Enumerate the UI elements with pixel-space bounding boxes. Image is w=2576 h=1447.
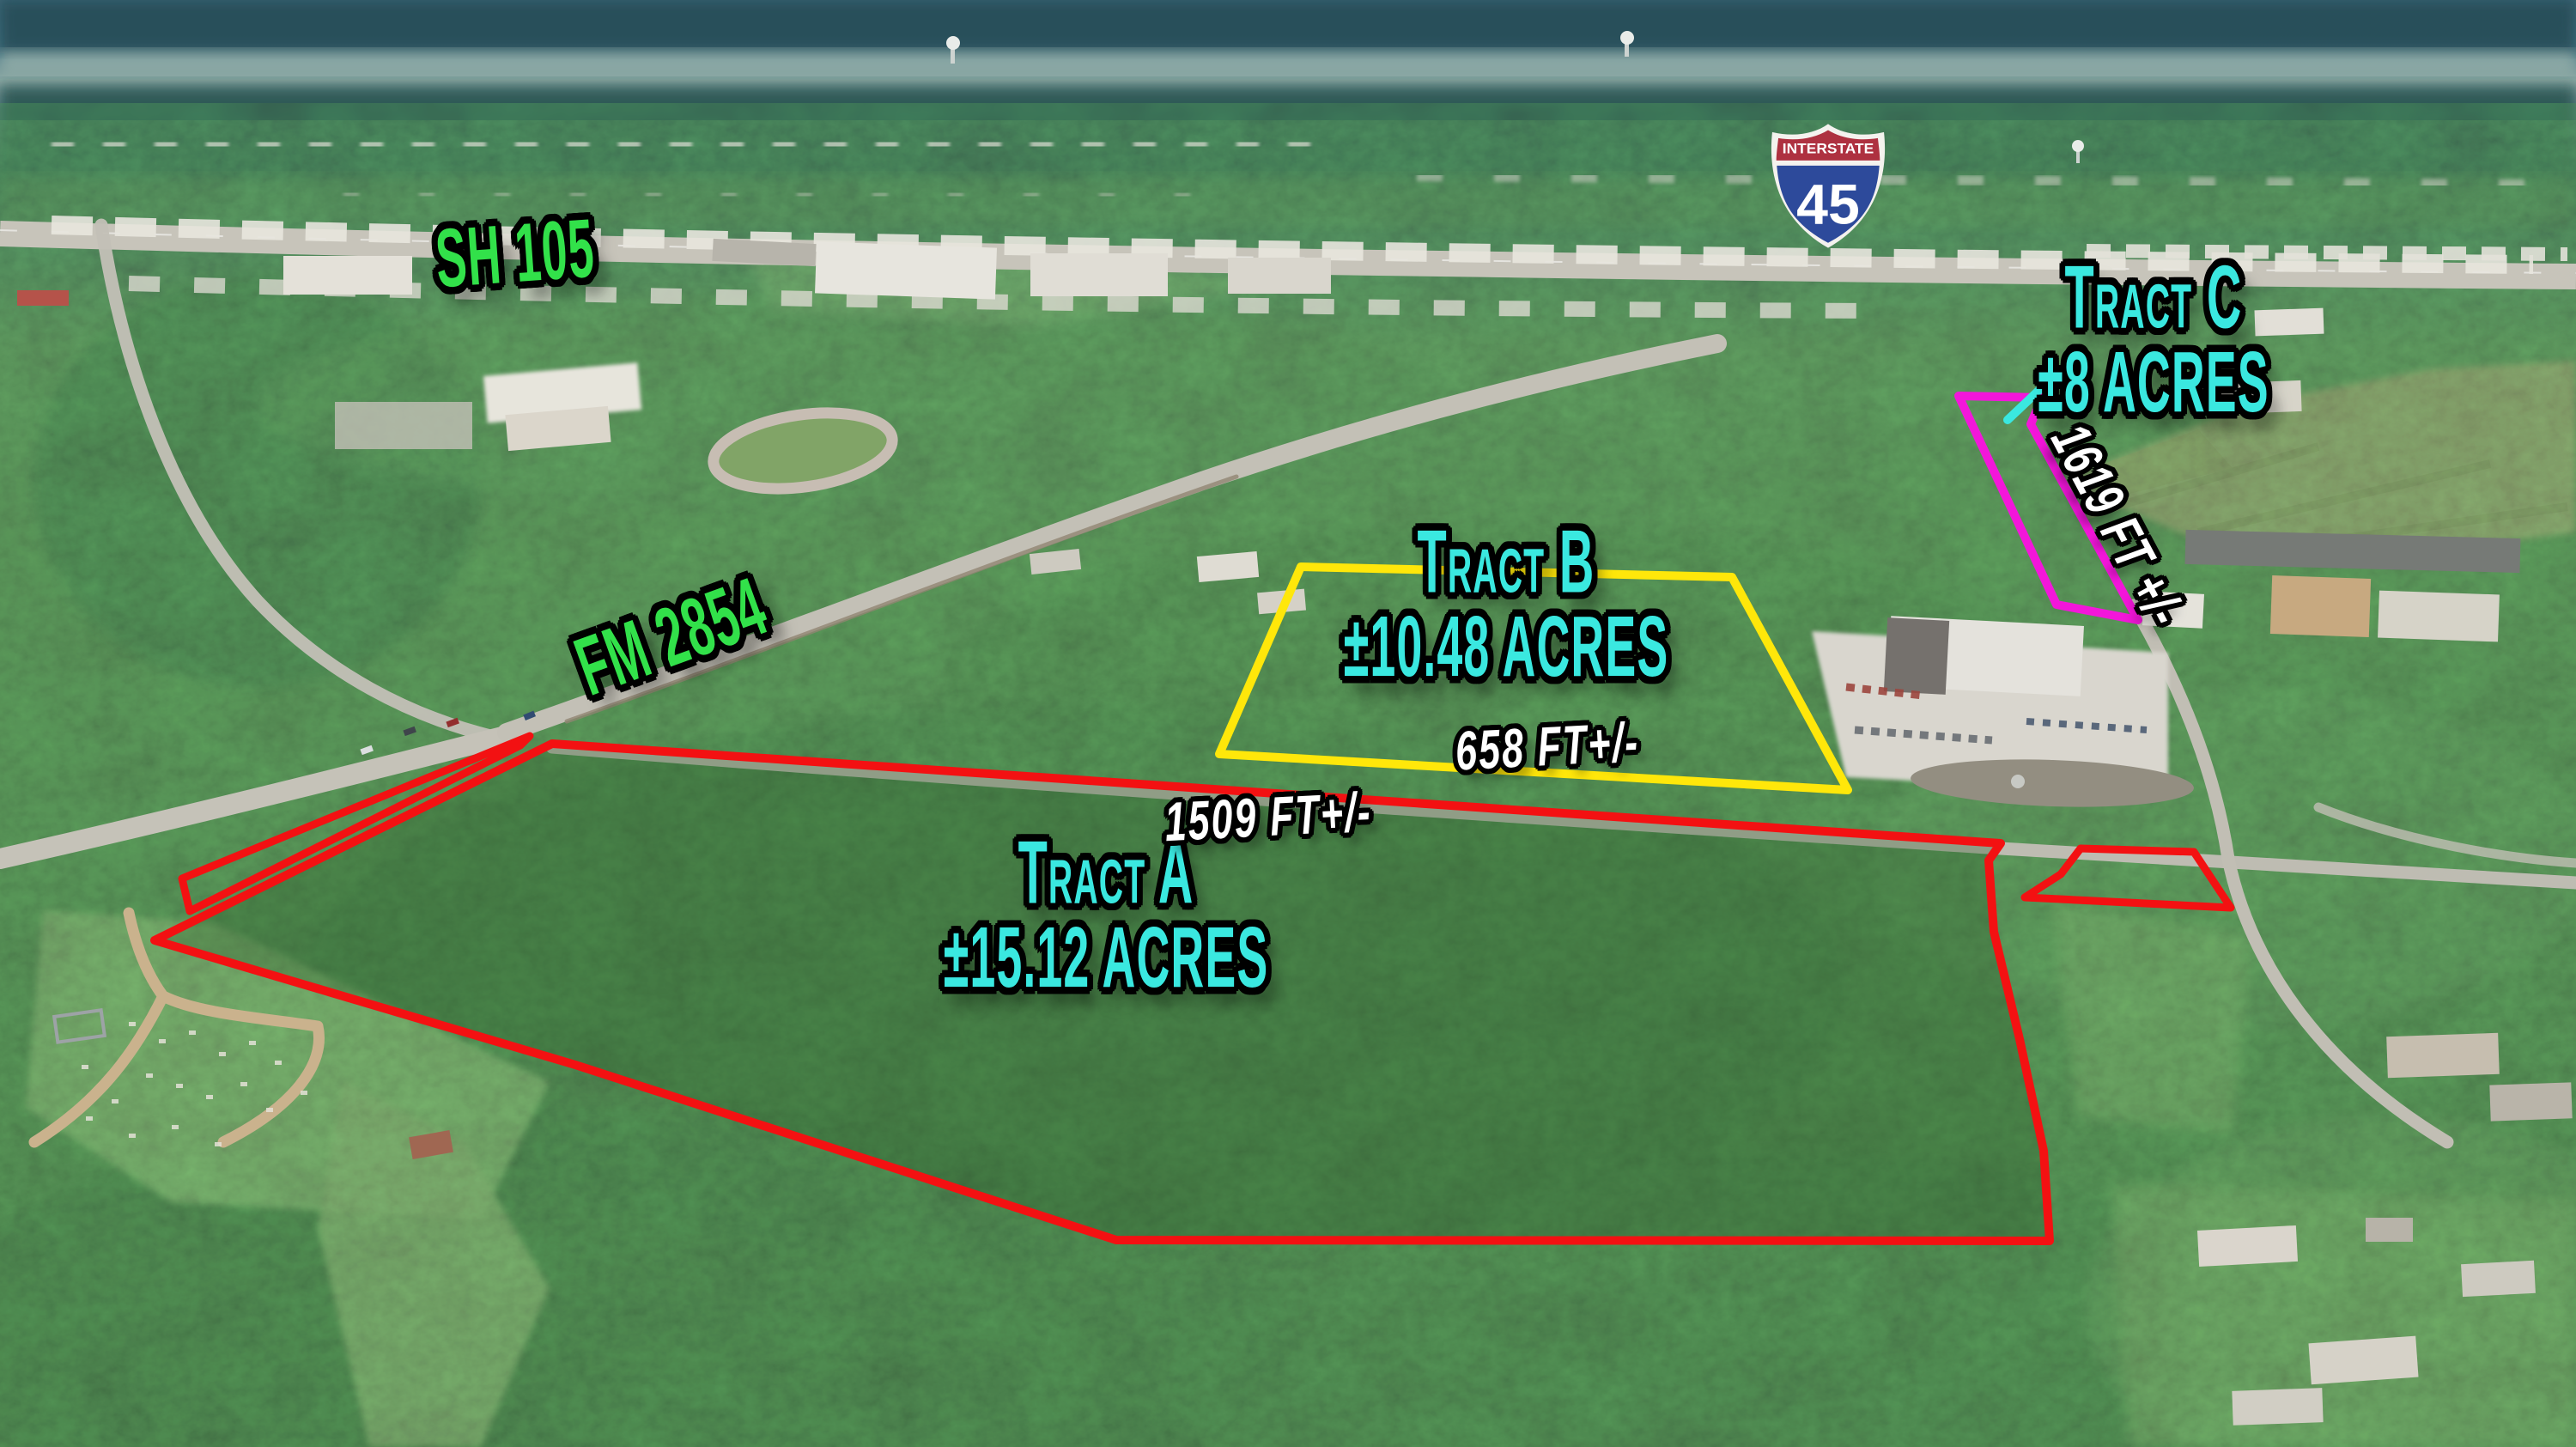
aerial-tract-map: SH 105 FM 2854 Tract C ±8 ACRES Tract B … (0, 0, 2576, 1447)
tract-c-name: Tract C (2038, 258, 2269, 337)
aerial-photo-background (0, 0, 2576, 1447)
shield-route-number: 45 (1796, 173, 1860, 236)
tract-b-name: Tract B (1344, 522, 1669, 601)
tract-b-acres: ±10.48 ACRES (1344, 601, 1669, 694)
tract-a-acres: ±15.12 ACRES (944, 912, 1269, 1005)
tract-c-acres: ±8 ACRES (2038, 337, 2269, 429)
tract-a-label: Tract A ±15.12 ACRES (944, 833, 1269, 1005)
interstate-45-shield-icon: INTERSTATE 45 (1767, 122, 1889, 254)
road-label-sh-105: SH 105 (433, 202, 598, 307)
tract-c-label: Tract C ±8 ACRES (2038, 258, 2269, 429)
shield-caption: INTERSTATE (1783, 141, 1874, 157)
tract-b-label: Tract B ±10.48 ACRES (1344, 522, 1669, 694)
tract-b-frontage-measurement: 658 FT+/- (1454, 709, 1641, 782)
tract-a-frontage-measurement: 1509 FT+/- (1163, 780, 1374, 854)
